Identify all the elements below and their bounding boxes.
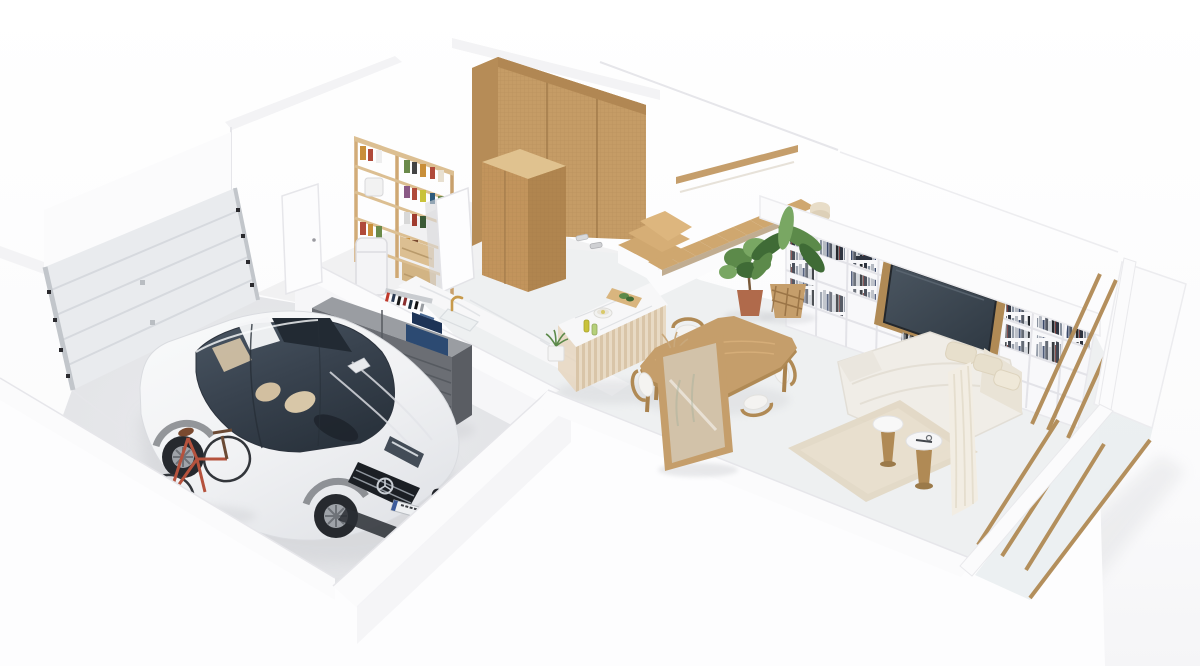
garage-service-door: [282, 184, 322, 294]
pantry-open-door: [425, 188, 474, 296]
bowl: [594, 308, 612, 318]
floor-plan-render: Pantry / Storage: [0, 0, 1200, 666]
scene-canvas: Pantry / Storage: [0, 0, 1200, 666]
wardrobe-small: [482, 149, 566, 292]
